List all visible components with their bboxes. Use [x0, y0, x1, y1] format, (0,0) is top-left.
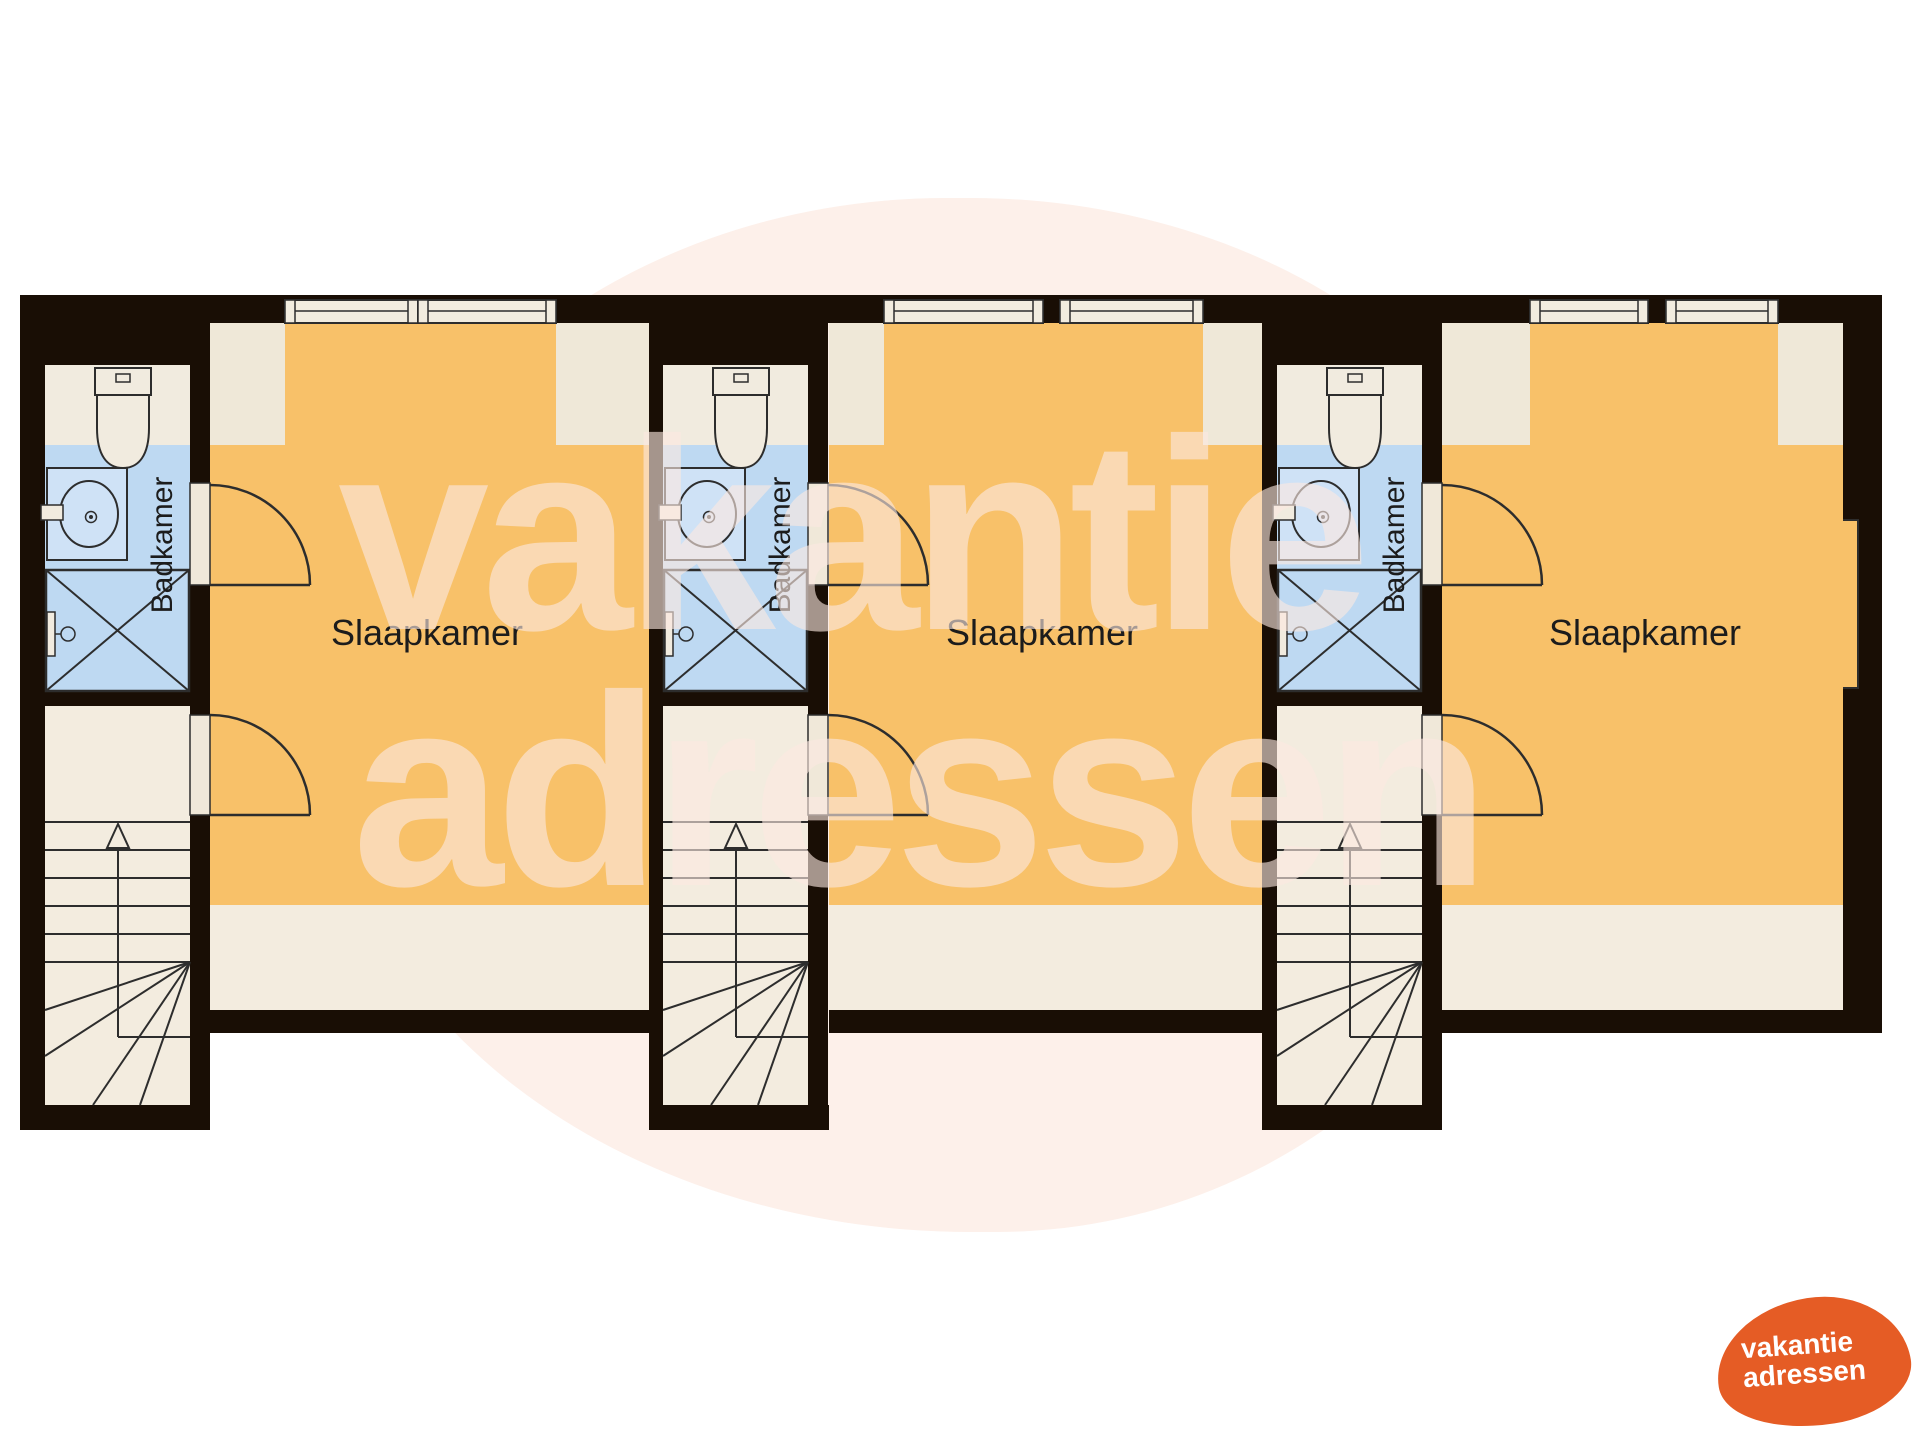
- toilet-bowl: [97, 395, 149, 468]
- window-post-right: [546, 300, 556, 323]
- window-2: [1666, 300, 1778, 323]
- wall-bathroom-hall-divider: [1277, 692, 1422, 706]
- unit-1: SlaapkamerBadkamer: [41, 295, 649, 1130]
- wall-recess-floor: [1841, 520, 1858, 688]
- shower-valve-bar: [47, 612, 55, 656]
- wall-bathroom-hall-divider: [45, 692, 190, 706]
- bedroom-low-headroom-bottom: [829, 905, 1262, 1010]
- door-jamb: [190, 715, 210, 815]
- door-jamb: [808, 715, 828, 815]
- window-post-right: [408, 300, 418, 323]
- window-post-left: [1530, 300, 1540, 323]
- bathroom-label: Badkamer: [764, 477, 797, 614]
- wall-bottom-unit3: [1442, 1010, 1882, 1033]
- sink-faucet: [41, 505, 63, 520]
- toilet-icon: [713, 368, 769, 468]
- window-2: [418, 300, 556, 323]
- wall-column-right-c: [808, 815, 828, 1130]
- wall-column-right-a: [190, 323, 210, 483]
- bedroom-low-headroom-left: [1442, 323, 1530, 445]
- stairwell-bottom-wall-3: [1262, 1105, 1442, 1130]
- wall-column-left: [649, 295, 663, 1130]
- sink-drain-dot: [1321, 515, 1325, 519]
- toilet-bowl: [715, 395, 767, 468]
- wall-column-right-b: [1422, 585, 1442, 715]
- bathroom-label: Badkamer: [146, 477, 179, 614]
- wall-above-bathroom: [1277, 295, 1422, 365]
- wall-column-right-b: [190, 585, 210, 715]
- stairwell-bottom-wall-2: [649, 1105, 829, 1130]
- window-1: [285, 300, 418, 323]
- door-jamb: [190, 483, 210, 585]
- bedroom-low-headroom-right: [556, 323, 649, 445]
- door-jamb: [1422, 483, 1442, 585]
- toilet-icon: [1327, 368, 1383, 468]
- window-post-right: [1033, 300, 1043, 323]
- sink-icon: [1273, 468, 1359, 560]
- wall-column-right-a: [808, 323, 828, 483]
- floorplan-drawing: SlaapkamerBadkamerSlaapkamerBadkamerSlaa…: [0, 0, 1920, 1440]
- unit-2: SlaapkamerBadkamer: [649, 295, 1262, 1130]
- window-post-left: [884, 300, 894, 323]
- bedroom-label: Slaapkamer: [946, 612, 1138, 653]
- bedroom-low-headroom-right: [1203, 323, 1262, 445]
- window-post-left: [418, 300, 428, 323]
- window-post-right: [1638, 300, 1648, 323]
- wall-bottom-unit1: [210, 1010, 649, 1033]
- window-2: [1060, 300, 1203, 323]
- bedroom-label: Slaapkamer: [1549, 612, 1741, 653]
- wall-column-right-c: [1422, 815, 1442, 1130]
- toilet-icon: [95, 368, 151, 468]
- wall-column-left: [1262, 295, 1277, 1130]
- sink-drain-dot: [89, 515, 93, 519]
- window-post-right: [1768, 300, 1778, 323]
- stairwell-bottom-wall-1: [20, 1105, 210, 1130]
- wall-above-bathroom: [45, 295, 190, 365]
- logo-text: vakantie adressen: [1740, 1326, 1867, 1393]
- floorplan-page: SlaapkamerBadkamerSlaapkamerBadkamerSlaa…: [0, 0, 1920, 1440]
- window-post-right: [1193, 300, 1203, 323]
- wall-column-right-b: [808, 585, 828, 715]
- door-jamb: [1422, 715, 1442, 815]
- sink-faucet: [659, 505, 681, 520]
- shower-valve-bar: [665, 612, 673, 656]
- window-1: [1530, 300, 1648, 323]
- sink-drain-dot: [707, 515, 711, 519]
- toilet-bowl: [1329, 395, 1381, 468]
- vakantieadressen-logo: vakantie adressen: [1716, 1298, 1910, 1426]
- window-post-left: [1060, 300, 1070, 323]
- wall-bottom-unit2: [829, 1010, 1262, 1033]
- bedroom-low-headroom-left: [210, 323, 285, 445]
- toilet-flush-button: [734, 374, 748, 382]
- wall-bathroom-hall-divider: [663, 692, 808, 706]
- bedroom-low-headroom-left: [829, 323, 884, 445]
- sink-faucet: [1273, 505, 1295, 520]
- toilet-flush-button: [116, 374, 130, 382]
- wall-column-right-a: [1422, 323, 1442, 483]
- bedroom-low-headroom-right: [1778, 323, 1843, 445]
- wall-left: [20, 295, 45, 1130]
- bedroom-low-headroom-bottom: [1442, 905, 1843, 1010]
- unit-3: SlaapkamerBadkamer: [1262, 295, 1858, 1130]
- bathroom-label: Badkamer: [1378, 477, 1411, 614]
- bedroom-low-headroom-bottom: [210, 905, 649, 1010]
- sink-icon: [659, 468, 745, 560]
- bedroom-label: Slaapkamer: [331, 612, 523, 653]
- door-jamb: [808, 483, 828, 585]
- window-post-left: [285, 300, 295, 323]
- shower-valve-bar: [1279, 612, 1287, 656]
- wall-above-bathroom: [663, 295, 808, 365]
- toilet-flush-button: [1348, 374, 1362, 382]
- wall-column-right-c: [190, 815, 210, 1130]
- sink-icon: [41, 468, 127, 560]
- wall-recess: [1841, 520, 1858, 688]
- window-post-left: [1666, 300, 1676, 323]
- window-1: [884, 300, 1043, 323]
